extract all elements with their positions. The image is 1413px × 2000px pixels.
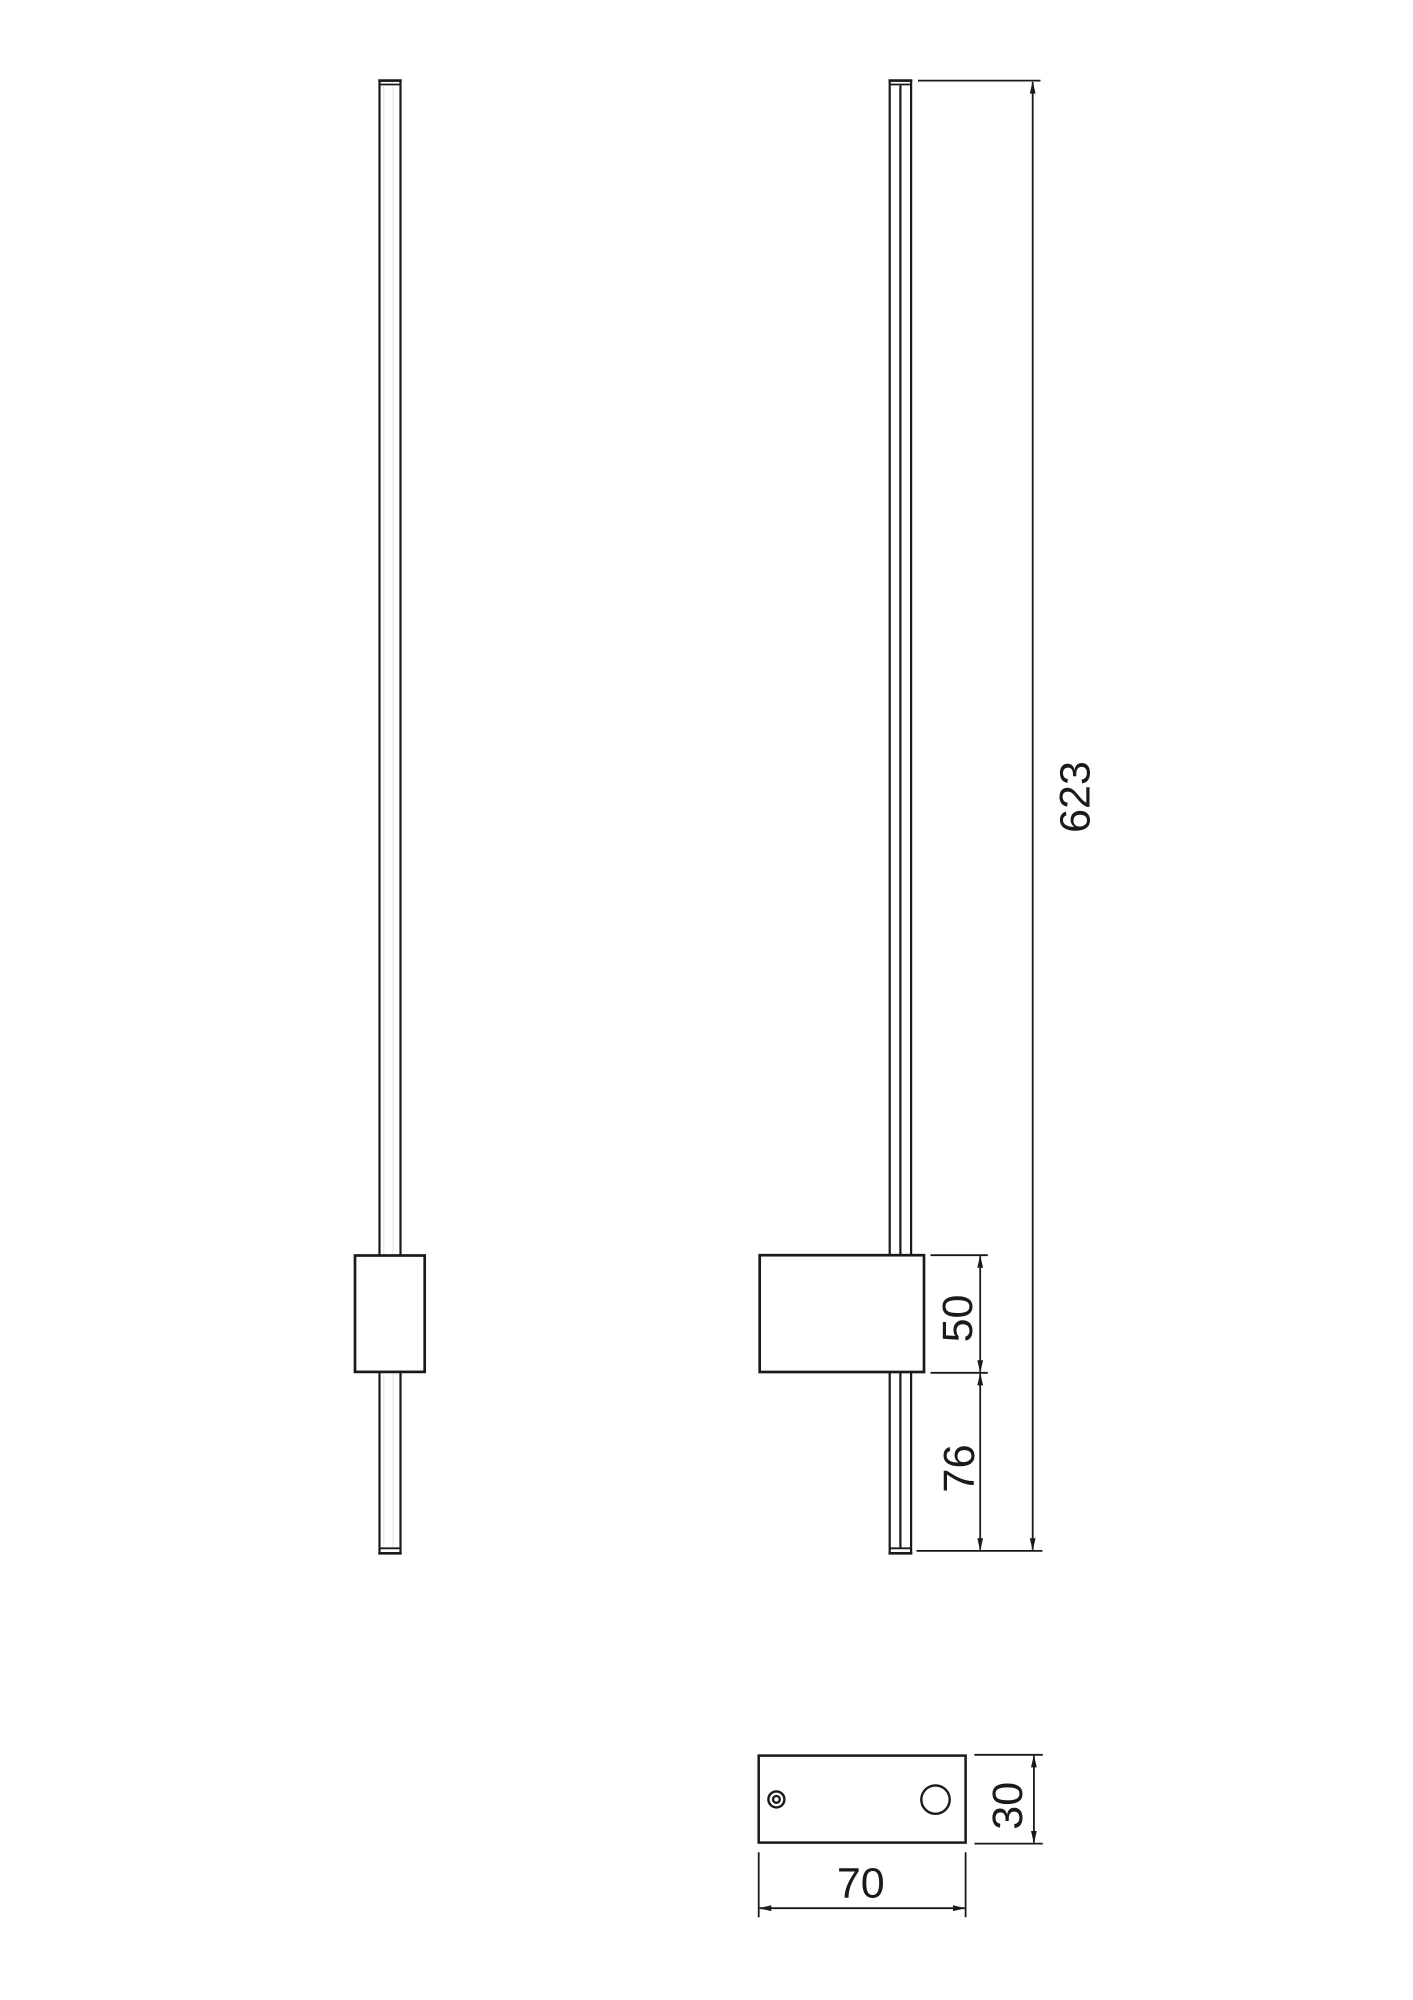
svg-text:76: 76	[936, 1444, 984, 1492]
svg-text:70: 70	[837, 1860, 885, 1908]
svg-text:30: 30	[984, 1782, 1032, 1830]
svg-text:623: 623	[1051, 761, 1099, 833]
svg-text:50: 50	[934, 1295, 982, 1343]
